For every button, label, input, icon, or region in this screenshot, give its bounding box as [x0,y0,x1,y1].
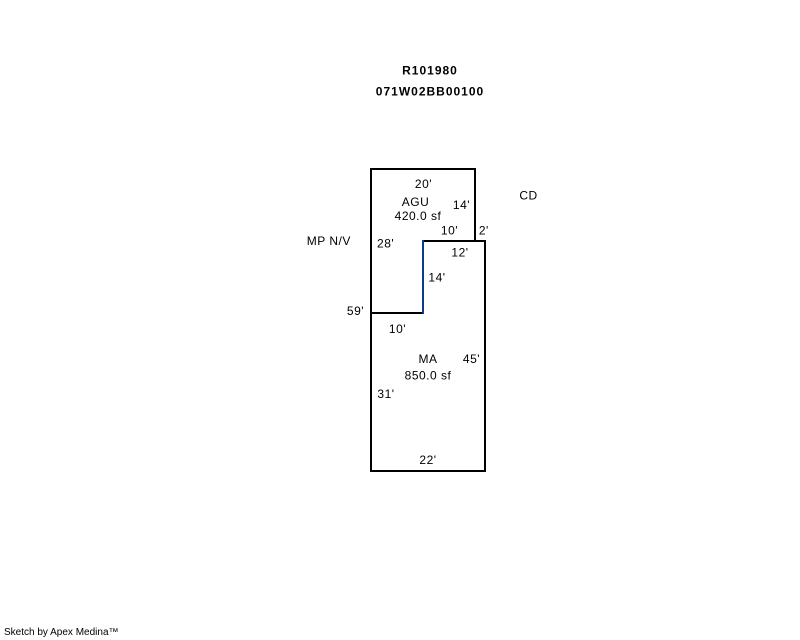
svg-text:20': 20' [415,177,432,191]
svg-text:12': 12' [451,246,468,260]
svg-text:10': 10' [389,322,406,336]
svg-text:14': 14' [428,271,445,285]
svg-text:Sketch by Apex Medina™: Sketch by Apex Medina™ [4,627,119,638]
svg-text:31': 31' [377,387,394,401]
svg-text:28': 28' [377,237,394,251]
svg-text:2': 2' [479,224,489,238]
svg-text:10': 10' [441,224,458,238]
svg-text:22': 22' [419,453,436,467]
svg-text:420.0 sf: 420.0 sf [395,209,442,223]
svg-text:45': 45' [463,352,480,366]
svg-text:14': 14' [453,198,470,212]
svg-text:R101980: R101980 [402,64,458,78]
svg-text:MP N/V: MP N/V [307,234,351,248]
svg-text:850.0 sf: 850.0 sf [405,369,452,383]
svg-text:59': 59' [347,304,364,318]
svg-text:CD: CD [519,189,537,203]
svg-text:AGU: AGU [402,195,430,209]
svg-text:071W02BB00100: 071W02BB00100 [376,85,484,99]
svg-text:MA: MA [419,352,438,366]
